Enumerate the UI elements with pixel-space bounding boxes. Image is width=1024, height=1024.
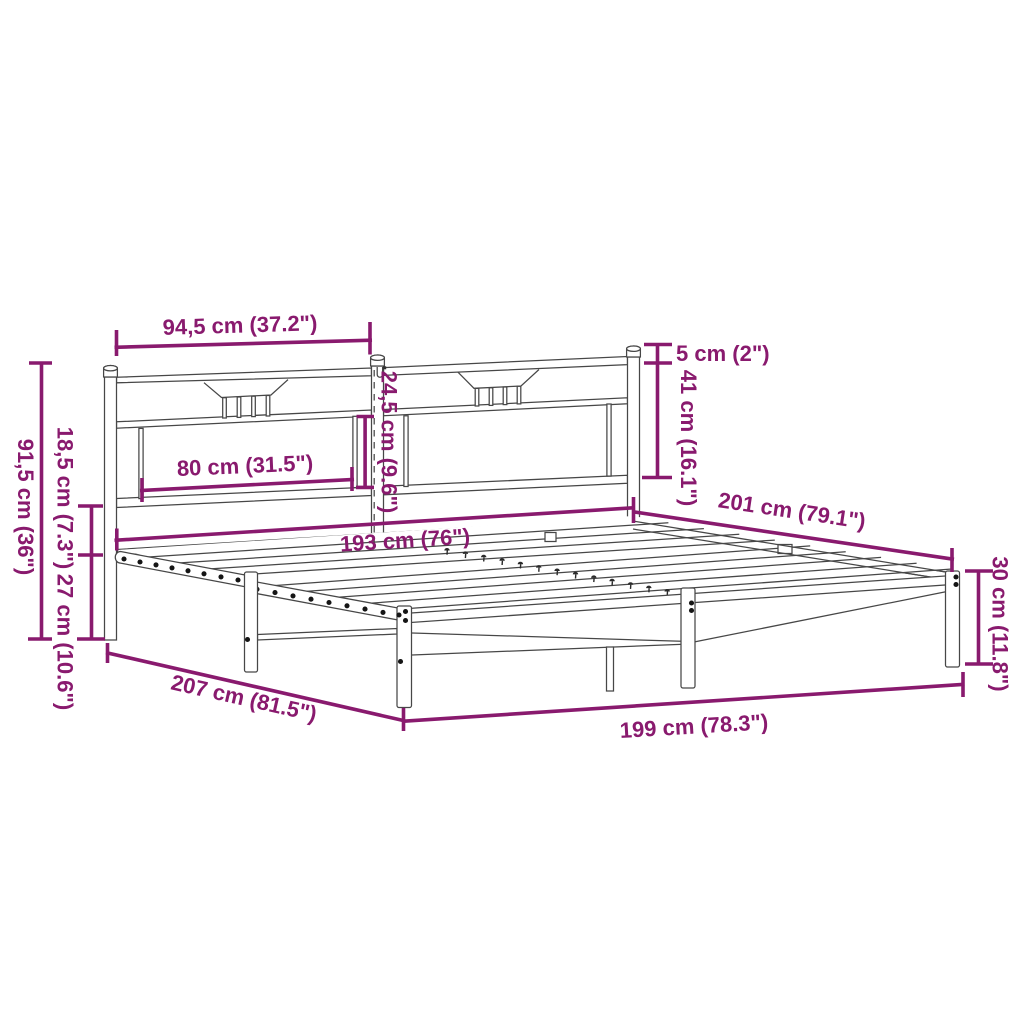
svg-text:18,5 cm (7.3"): 18,5 cm (7.3"): [52, 427, 77, 570]
svg-text:91,5 cm (36"): 91,5 cm (36"): [13, 439, 38, 575]
svg-text:80 cm (31.5"): 80 cm (31.5"): [176, 450, 313, 481]
svg-text:30 cm (11.8"): 30 cm (11.8"): [987, 556, 1012, 691]
svg-text:207 cm (81.5"): 207 cm (81.5"): [169, 670, 320, 727]
svg-text:5 cm (2"): 5 cm (2"): [676, 341, 770, 366]
svg-text:24,5 cm (9.6"): 24,5 cm (9.6"): [376, 371, 401, 514]
svg-text:41 cm (16.1"): 41 cm (16.1"): [676, 370, 701, 506]
svg-text:199 cm (78.3"): 199 cm (78.3"): [619, 709, 769, 743]
svg-text:27 cm (10.6"): 27 cm (10.6"): [52, 574, 77, 710]
svg-text:94,5 cm (37.2"): 94,5 cm (37.2"): [162, 310, 317, 340]
